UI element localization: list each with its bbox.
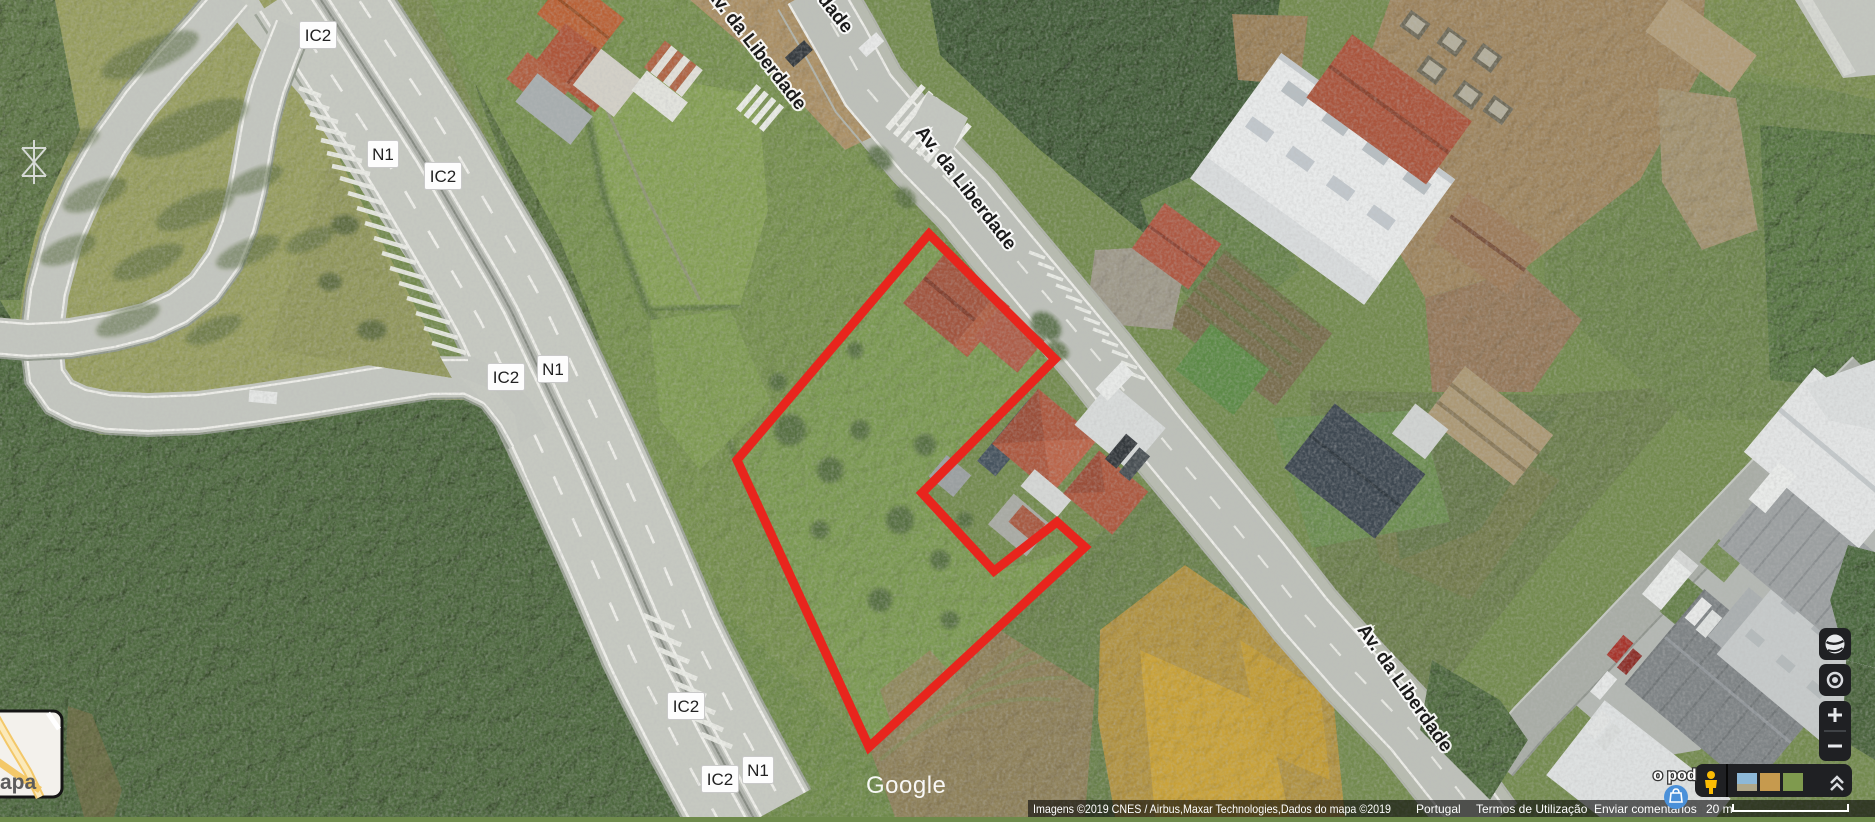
svg-text:20 m: 20 m (1706, 802, 1733, 816)
svg-text:N1: N1 (747, 761, 769, 780)
svg-text:N1: N1 (372, 145, 394, 164)
svg-text:o pod: o pod (1653, 767, 1697, 784)
svg-text:IC2: IC2 (707, 770, 733, 789)
svg-text:Google: Google (866, 772, 946, 799)
svg-text:Imagens ©2019 CNES / Airbus,Ma: Imagens ©2019 CNES / Airbus,Maxar Techno… (1033, 802, 1391, 816)
svg-text:IC2: IC2 (493, 368, 519, 387)
svg-text:apa: apa (0, 771, 37, 794)
svg-text:Termos de Utilização: Termos de Utilização (1476, 802, 1588, 816)
svg-text:IC2: IC2 (305, 26, 331, 45)
svg-text:N1: N1 (542, 360, 564, 379)
svg-text:IC2: IC2 (430, 167, 456, 186)
svg-text:Portugal: Portugal (1416, 802, 1461, 816)
svg-text:IC2: IC2 (673, 697, 699, 716)
